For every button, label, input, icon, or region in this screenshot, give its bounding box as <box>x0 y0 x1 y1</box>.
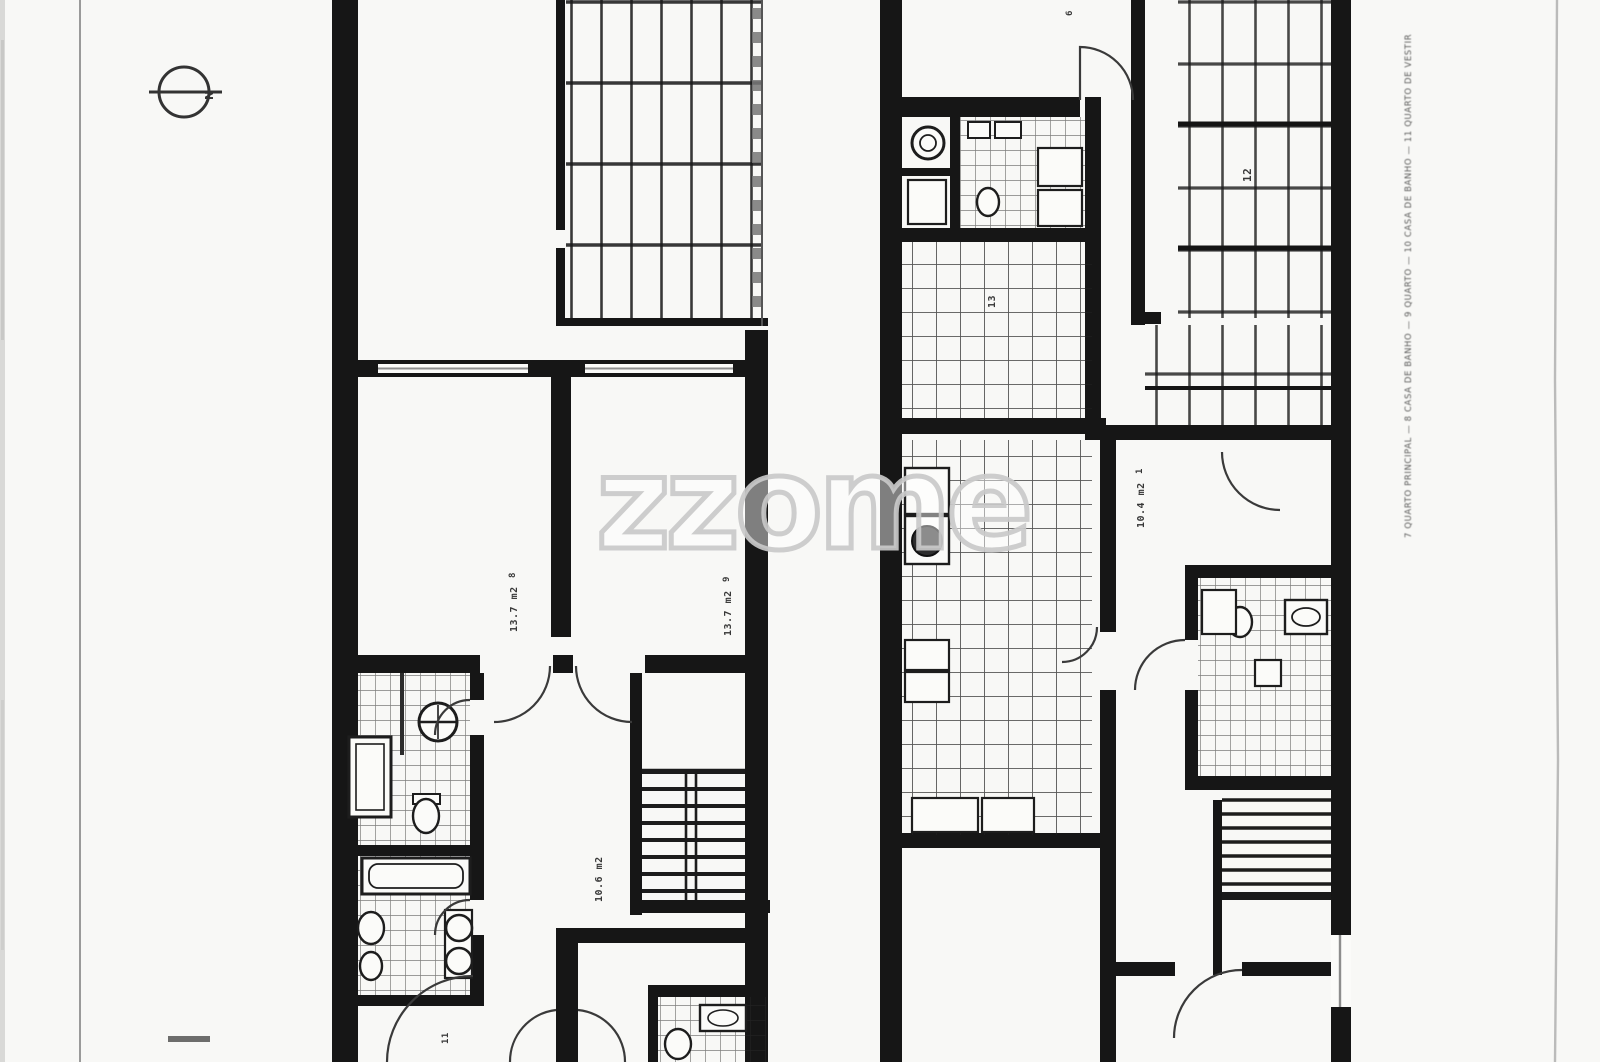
room-number-label: 1 <box>1134 468 1146 474</box>
room-number-label: 13 <box>987 295 999 308</box>
left-staircase <box>642 770 745 900</box>
legend-vertical-text: 7 QUARTO PRINCIPAL — 8 CASA DE BANHO — 9… <box>1404 34 1414 538</box>
bathtub-fixture <box>362 858 470 894</box>
right-bathroom <box>1198 578 1331 776</box>
toilet-fixture <box>413 794 440 833</box>
double-basin-fixture <box>445 910 472 978</box>
right-staircase <box>1222 800 1331 900</box>
scanned-floorplan-page: 8 13.7 m2 9 13.7 m2 10.6 m2 11 6 12 13 1… <box>0 0 1600 1062</box>
room-area-label: 10.4 m2 <box>1136 482 1148 528</box>
left-bathroom-1 <box>349 673 470 845</box>
room-number-label: 11 <box>440 1032 452 1044</box>
room-number-label: 12 <box>1242 168 1254 182</box>
room-number-label: 8 <box>507 572 519 578</box>
hob-sink-fixture <box>912 127 944 159</box>
room-area-label: 10.6 m2 <box>594 856 606 902</box>
room-area-label: 13.7 m2 <box>509 586 521 632</box>
room-area-label: 13.7 m2 <box>723 590 735 636</box>
right-middle-tiled-room <box>902 242 1092 418</box>
watermark-text: zzome <box>596 430 1028 579</box>
left-bottom-bathroom <box>658 997 766 1062</box>
left-terrace-deck <box>556 0 768 326</box>
right-terrace <box>1145 0 1331 425</box>
shower-tray-fixture <box>349 737 391 817</box>
right-plan-window <box>1331 935 1351 1007</box>
compass-north-label: N <box>204 91 216 100</box>
left-bathroom-2 <box>358 856 472 995</box>
room-number-label: 6 <box>1064 10 1076 16</box>
